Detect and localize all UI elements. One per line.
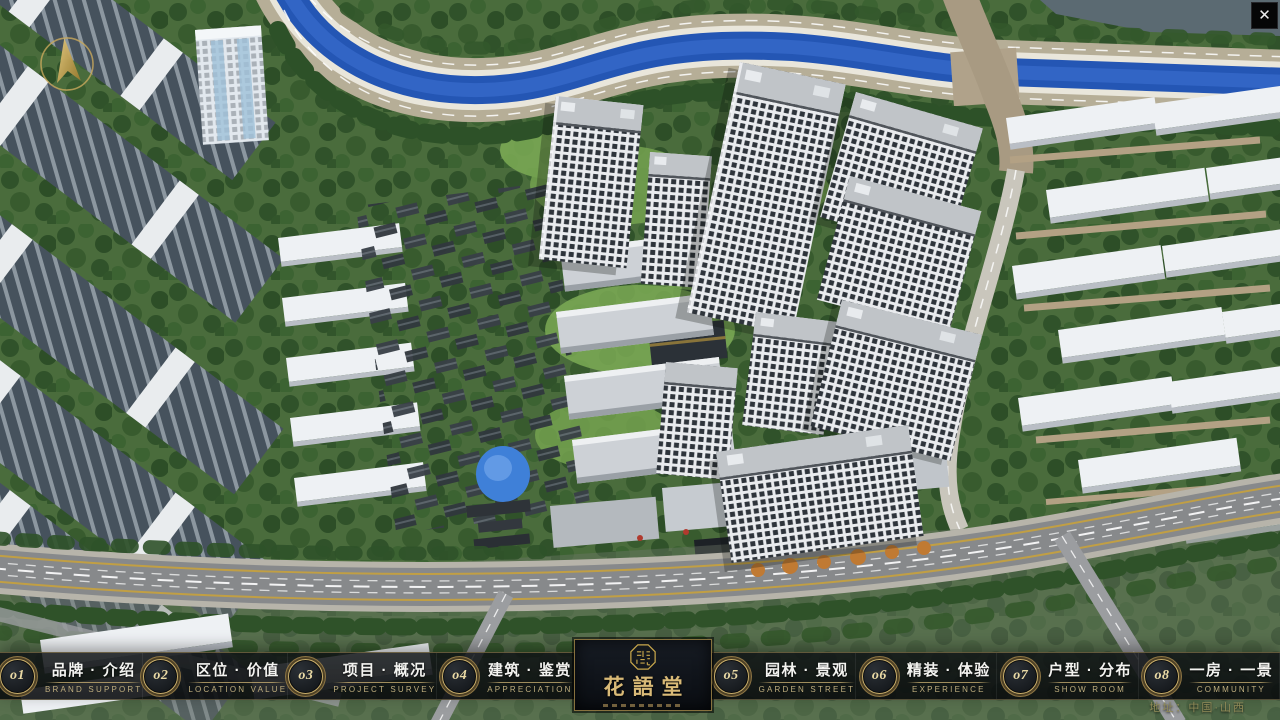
nav-label-en: BRAND SUPPORT (45, 685, 142, 694)
nav-divider-line (45, 682, 142, 683)
nav-number: o5 (724, 668, 739, 684)
nav-label-zh: 户型 · 分布 (1048, 659, 1132, 680)
close-button[interactable]: ✕ (1251, 2, 1278, 29)
nav-number-badge: o2 (143, 659, 178, 694)
nav-divider-line (759, 682, 856, 683)
close-icon: ✕ (1258, 8, 1271, 23)
nav-number-badge: o8 (1144, 659, 1179, 694)
nav-number-badge: o3 (288, 659, 323, 694)
compass-icon (36, 32, 98, 96)
nav-label-zh: 园林 · 景观 (765, 659, 849, 680)
nav-number: o6 (872, 668, 887, 684)
nav-item-brand[interactable]: o1 品牌 · 介绍BRAND SUPPORT (0, 653, 143, 699)
nav-label-en: APPRECIATION (487, 685, 572, 694)
nav-label-en: GARDEN STREET (759, 685, 856, 694)
nav-label-zh: 一房 · 一景 (1189, 659, 1273, 680)
pond (476, 446, 530, 502)
nav-item-project[interactable]: o3 项目 · 概况PROJECT SURVEY (288, 653, 437, 699)
nav-number: o1 (10, 668, 25, 684)
nav-label-en: EXPERIENCE (912, 685, 986, 694)
logo-title: 花語堂 (604, 671, 691, 701)
nav-item-garden[interactable]: o5 园林 · 景观GARDEN STREET (714, 653, 857, 699)
nav-divider-line (487, 682, 572, 683)
nav-label-en: COMMUNITY (1197, 685, 1266, 694)
nav-label-zh: 区位 · 价值 (196, 659, 280, 680)
nav-label-en: LOCATION VALUE (188, 685, 287, 694)
nav-number-badge: o7 (1003, 659, 1038, 694)
nav-divider-line (333, 682, 436, 683)
nav-label-en: PROJECT SURVEY (333, 685, 436, 694)
nav-number-badge: o1 (0, 659, 35, 694)
nav-label-zh: 精装 · 体验 (907, 659, 991, 680)
nav-label-zh: 建筑 · 鉴赏 (488, 659, 572, 680)
scene-render (0, 0, 1280, 720)
nav-item-location[interactable]: o2 区位 · 价值LOCATION VALUE (143, 653, 288, 699)
nav-number-badge: o6 (862, 659, 897, 694)
nav-number: o4 (452, 668, 467, 684)
nav-number: o8 (1154, 668, 1169, 684)
nav-divider-line (907, 682, 991, 683)
address-text: 地址：中国·山西 (1149, 699, 1246, 715)
nav-number: o2 (153, 668, 168, 684)
nav-item-rooms[interactable]: o8 一房 · 一景COMMUNITY (1139, 653, 1280, 699)
nav-divider-line (188, 682, 287, 683)
app-window: ✕ o1 品牌 · 介绍BRAND SUPPORT o2 区位 · 价值LOCA… (0, 0, 1280, 720)
logo-subtext-decoration (603, 704, 683, 707)
logo-panel[interactable]: 花語堂 (574, 639, 712, 711)
nav-number: o7 (1013, 668, 1028, 684)
nav-number: o3 (298, 668, 313, 684)
nav-label-zh: 品牌 · 介绍 (52, 659, 136, 680)
nav-label-en: SHOW ROOM (1054, 685, 1126, 694)
nav-divider-line (1189, 682, 1273, 683)
nav-number-badge: o5 (714, 659, 749, 694)
glass-tower (195, 25, 269, 144)
nav-number-badge: o4 (442, 659, 477, 694)
nav-divider-line (1048, 682, 1132, 683)
nav-label-zh: 项目 · 概况 (343, 659, 427, 680)
nav-item-floorplan[interactable]: o7 户型 · 分布SHOW ROOM (997, 653, 1138, 699)
nav-item-interior[interactable]: o6 精装 · 体验EXPERIENCE (856, 653, 997, 699)
seal-icon (630, 644, 656, 670)
nav-item-architecture[interactable]: o4 建筑 · 鉴赏APPRECIATION (437, 653, 578, 699)
